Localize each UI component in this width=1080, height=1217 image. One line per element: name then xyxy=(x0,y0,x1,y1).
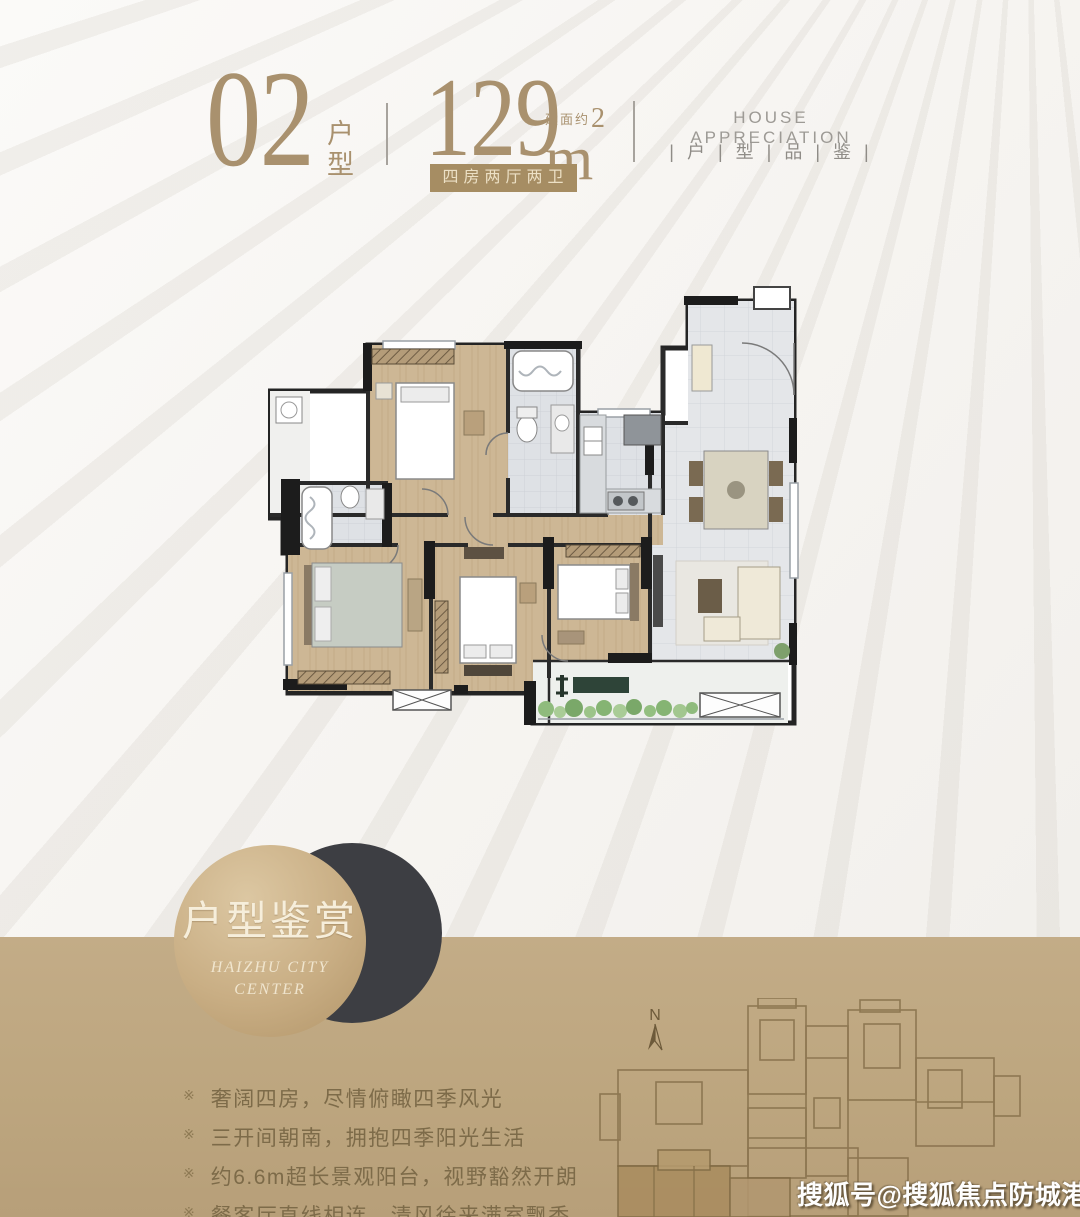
header-divider-left xyxy=(386,103,388,165)
layout-badge: 四房两厅两卫 xyxy=(430,164,577,192)
unit-type-label: 户 型 xyxy=(327,119,355,181)
feature-item: ※ 约6.6m超长景观阳台，视野豁然开朗 xyxy=(183,1161,578,1185)
compass-label: N xyxy=(649,1007,661,1024)
showcase-subtitle: HAIZHU CITY CENTER xyxy=(211,957,329,1001)
feature-item: ※ 奢阔四房，尽情俯瞰四季风光 xyxy=(183,1083,578,1107)
gold-circle: 户型鉴赏 HAIZHU CITY CENTER xyxy=(174,845,366,1037)
feature-item: ※ 餐客厅直线相连，清风徐来满室飘香 xyxy=(183,1200,578,1217)
flue-box xyxy=(754,287,790,309)
site-plan-highlight xyxy=(618,1150,790,1217)
showcase-title: 户型鉴赏 xyxy=(182,887,358,947)
floor-plan-drawing xyxy=(268,283,808,738)
feature-text: 餐客厅直线相连，清风徐来满室飘香 xyxy=(211,1200,571,1217)
feature-text: 约6.6m超长景观阳台，视野豁然开朗 xyxy=(211,1161,579,1191)
bullet-marker-icon: ※ xyxy=(183,1204,195,1217)
compass: N xyxy=(648,1007,662,1050)
bullet-marker-icon: ※ xyxy=(183,1087,195,1104)
feature-item: ※ 三开间朝南，拥抱四季阳光生活 xyxy=(183,1122,578,1146)
feature-text: 三开间朝南，拥抱四季阳光生活 xyxy=(211,1122,526,1152)
area-number: 129 xyxy=(425,62,560,174)
showcase-subtitle-line1: HAIZHU CITY xyxy=(211,957,329,979)
corridor xyxy=(368,515,663,545)
header-chinese-subtitle: | 户 | 型 | 品 | 鉴 | xyxy=(656,138,886,164)
bullet-marker-icon: ※ xyxy=(183,1126,195,1143)
feature-text: 奢阔四房，尽情俯瞰四季风光 xyxy=(211,1083,504,1113)
watermark: 搜狐号@搜狐焦点防城港站 xyxy=(797,1175,1080,1212)
feature-list: ※ 奢阔四房，尽情俯瞰四季风光 ※ 三开间朝南，拥抱四季阳光生活 ※ 约6.6m… xyxy=(183,1083,578,1217)
floorplan-poster: 02 户 型 129 建面约2 m 四房两厅两卫 HOUSE APPRECIAT… xyxy=(0,0,1080,1217)
bullet-marker-icon: ※ xyxy=(183,1165,195,1182)
unit-label-char-2: 型 xyxy=(327,150,355,181)
unit-label-char-1: 户 xyxy=(327,119,355,150)
unit-number: 02 xyxy=(206,50,313,188)
area-superscript: 2 xyxy=(591,103,605,135)
showcase-subtitle-line2: CENTER xyxy=(211,979,329,1001)
header-divider-right xyxy=(633,101,635,162)
